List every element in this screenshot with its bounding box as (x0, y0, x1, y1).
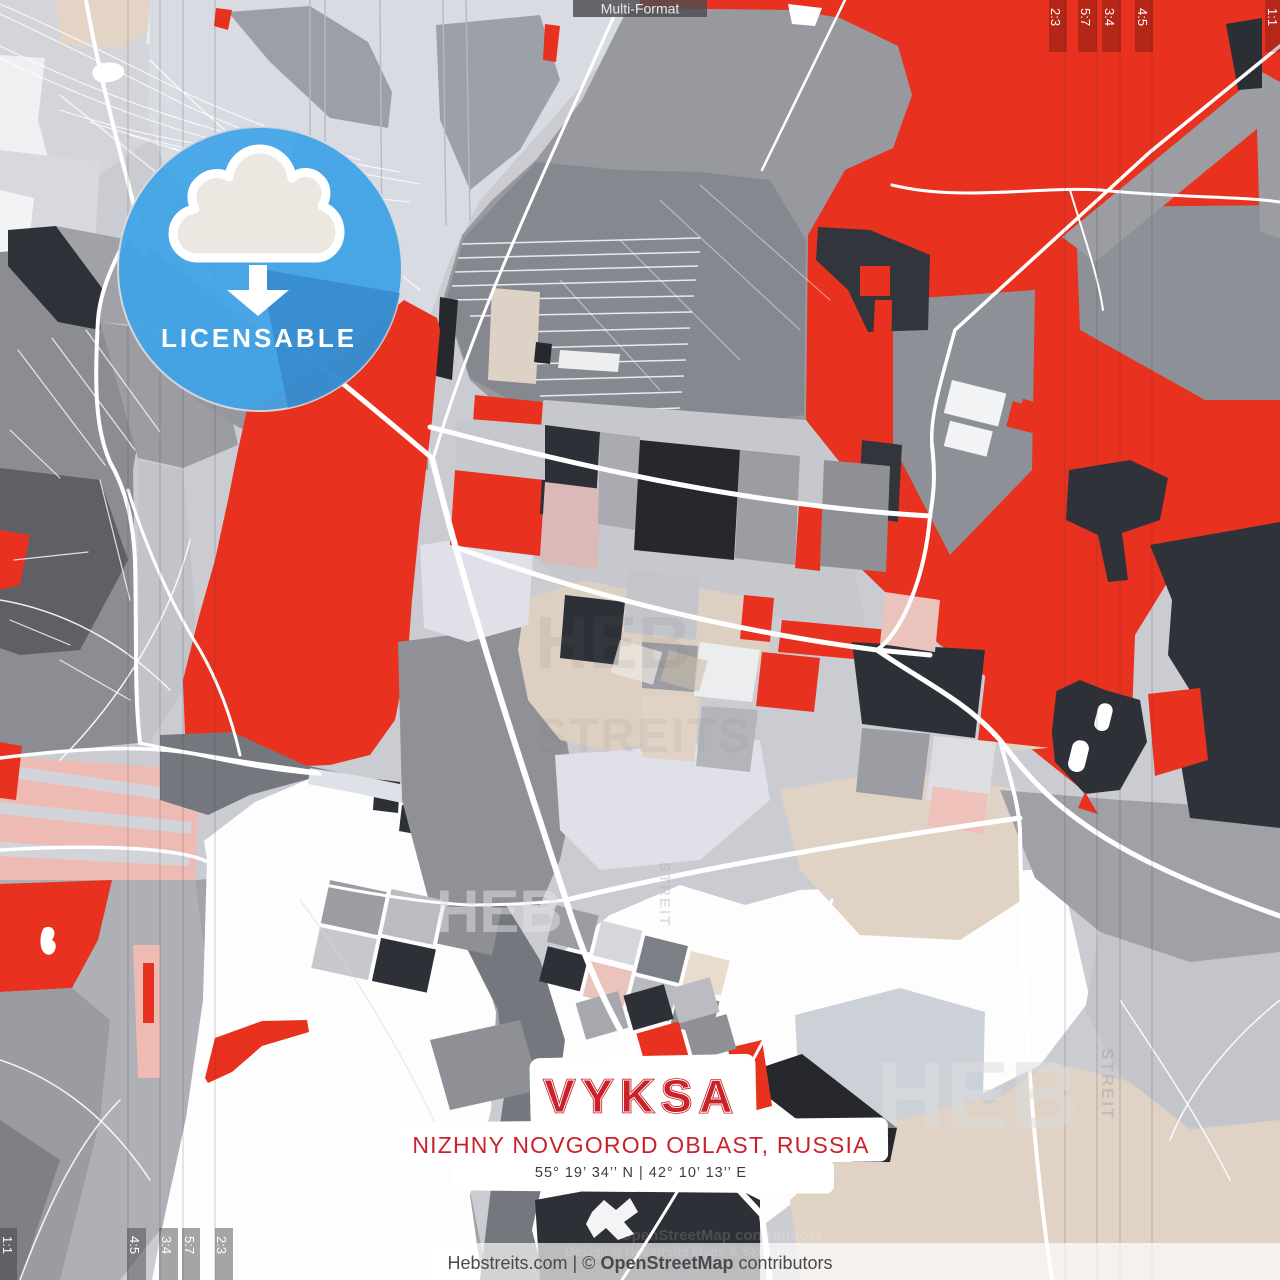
svg-text:Hebstreits.com | © OpenStreetM: Hebstreits.com | © OpenStreetMap contrib… (447, 1253, 832, 1273)
svg-text:STREITS: STREITS (535, 710, 752, 763)
svg-text:OpenStreetMap contributors: OpenStreetMap contributors (620, 1227, 823, 1244)
svg-text:NIZHNY NOVGOROD OBLAST, RUSSIA: NIZHNY NOVGOROD OBLAST, RUSSIA (412, 1132, 869, 1158)
svg-text:5:7: 5:7 (182, 1236, 197, 1254)
svg-text:2:3: 2:3 (1048, 8, 1063, 26)
svg-text:3:4: 3:4 (159, 1236, 174, 1254)
svg-text:4:5: 4:5 (127, 1236, 142, 1254)
svg-text:5:7: 5:7 (1078, 8, 1093, 26)
svg-text:3:4: 3:4 (1102, 8, 1117, 26)
svg-text:HEB: HEB (876, 1042, 1079, 1149)
svg-text:1:1: 1:1 (1265, 8, 1280, 26)
svg-text:HEB: HEB (436, 878, 563, 945)
svg-text:VYKSA: VYKSA (544, 1070, 740, 1122)
svg-text:Multi-Format: Multi-Format (601, 1, 680, 17)
svg-text:55° 19’ 34’’ N | 42° 10’: 55° 19’ 34’’ N | 42° 10’ 13’’ E (535, 1165, 747, 1181)
svg-text:STREIT: STREIT (656, 862, 673, 927)
svg-text:HEB: HEB (226, 1064, 340, 1124)
svg-text:HEB: HEB (535, 601, 691, 684)
svg-text:4:5: 4:5 (1135, 8, 1150, 26)
svg-text:1:1: 1:1 (0, 1236, 15, 1254)
svg-text:LICENSABLE: LICENSABLE (161, 323, 357, 353)
svg-text:STREIT: STREIT (1098, 1048, 1117, 1120)
svg-text:2:3: 2:3 (214, 1236, 229, 1254)
